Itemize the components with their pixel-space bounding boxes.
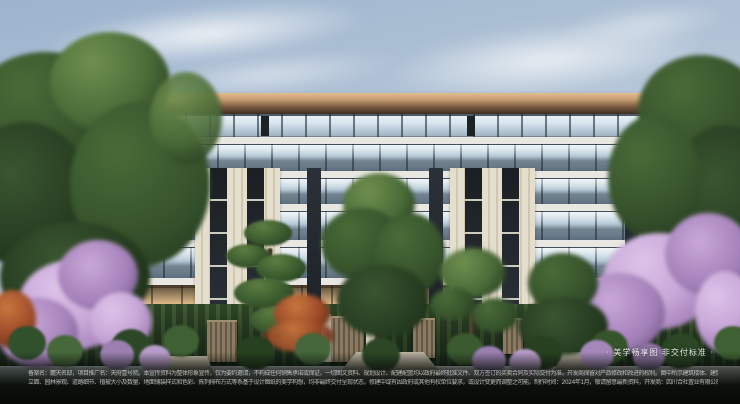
dark-ground-band — [0, 352, 740, 404]
floor-slab — [52, 171, 688, 178]
floor-glass — [57, 144, 683, 171]
window-slot — [502, 168, 519, 318]
floor-glass — [57, 178, 683, 204]
shrub-row-lavender — [0, 0, 26, 22]
floor-glass — [57, 211, 683, 240]
dark-pier — [99, 168, 113, 316]
disclaimer-line-2: 立面、园林景观、道路细节、植被大小及数量、地面铺装样式和色彩、陈列排布方式等系基… — [28, 379, 718, 387]
bronze-roof-crown — [49, 93, 691, 114]
dark-pier — [307, 168, 321, 316]
disclaimer-line-1: 备案名：麓天名邸，项目推广名：天府壹号院。本宣传资料为整体形象宣传，仅为要约邀请… — [28, 370, 718, 378]
rendering-canvas: · 美学畅享图 非交付标准 · 备案名：麓天名邸，项目推广名：天府壹号院。本宣传… — [0, 0, 740, 404]
watermark-label: · 美学畅享图 非交付标准 · — [606, 347, 714, 358]
residential-building — [57, 93, 683, 340]
window-slot — [210, 168, 227, 318]
window-slot — [247, 168, 264, 318]
window-slot — [465, 168, 482, 318]
floor-slab — [52, 240, 688, 247]
garden-gate — [503, 318, 523, 354]
floor-slab — [52, 278, 688, 285]
floor-glass — [57, 247, 683, 278]
cream-pilaster-group — [195, 168, 280, 318]
cream-pilaster-group — [450, 168, 535, 318]
window-mullion — [261, 116, 269, 136]
dark-pier — [625, 168, 639, 316]
floor-slab — [52, 137, 688, 144]
floor-slab — [52, 204, 688, 211]
penthouse-glass — [67, 114, 673, 137]
dark-pier — [429, 168, 443, 316]
window-mullion — [467, 116, 475, 136]
